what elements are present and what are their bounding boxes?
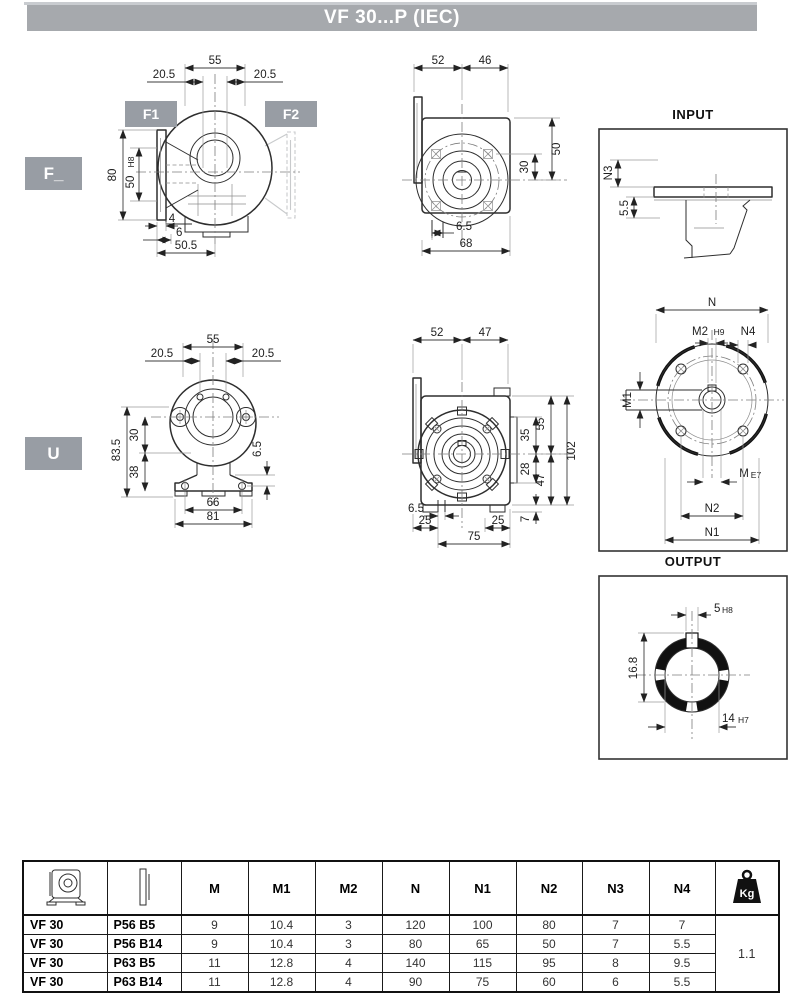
dim-f-6: 6 — [176, 227, 182, 239]
cell-N4: 7 — [649, 915, 715, 935]
dim-f-205-right: 20.5 — [254, 69, 276, 81]
dim-in-55: 5.5 — [619, 200, 631, 216]
cell-M: 9 — [181, 915, 248, 935]
f-side-extension-lines — [414, 64, 560, 256]
dim-out-key-tol: H8 — [722, 605, 733, 615]
cell-weight: 1.1 — [715, 915, 779, 992]
page-title: VF 30...P (IEC) — [27, 5, 757, 31]
cell-N: 140 — [382, 954, 449, 973]
dim-u-66: 66 — [207, 497, 220, 509]
cell-model: VF 30 — [23, 954, 107, 973]
dim-u-38: 38 — [129, 466, 141, 479]
f1-label-text: F1 — [143, 106, 160, 122]
input-side-dimensions: N3 5.5 — [603, 160, 660, 218]
drawing-u-front-view: 55 20.5 20.5 83.5 30 38 6.5 66 81 — [95, 325, 325, 537]
cell-N3: 6 — [582, 973, 649, 993]
dim-in-n: N — [708, 297, 716, 309]
output-dimensions: 5 H8 16.8 14 H7 — [628, 603, 749, 733]
header-N3: N3 — [582, 861, 649, 915]
motor-flange-icon — [133, 866, 155, 908]
dim-f-205-left: 20.5 — [153, 69, 175, 81]
cell-N: 80 — [382, 935, 449, 954]
cell-M: 11 — [181, 954, 248, 973]
cell-N1: 115 — [449, 954, 516, 973]
dim-us-55: 55 — [535, 418, 547, 431]
kg-icon-label: Kg — [739, 888, 754, 900]
dim-f-505: 50.5 — [175, 240, 197, 252]
dim-u-835: 83.5 — [111, 439, 123, 461]
dim-u-55: 55 — [207, 334, 220, 346]
table-row: VF 30 P56 B5 9 10.4 3 120 100 80 7 7 1.1 — [23, 915, 779, 935]
input-panel-title: INPUT — [598, 107, 788, 122]
u-side-body — [413, 378, 517, 512]
cell-M2: 4 — [315, 954, 382, 973]
cell-M1: 10.4 — [248, 935, 315, 954]
dim-in-n1: N1 — [705, 527, 720, 539]
cell-M1: 10.4 — [248, 915, 315, 935]
dim-out-bore: 14 — [722, 713, 735, 725]
dim-fs-46: 46 — [479, 55, 492, 67]
cell-M1: 12.8 — [248, 954, 315, 973]
dim-us-75: 75 — [468, 531, 481, 543]
dim-u-205-left: 20.5 — [151, 348, 173, 360]
dim-us-52: 52 — [431, 327, 444, 339]
dim-out-key: 5 — [714, 603, 720, 615]
cell-mount: P63 B5 — [107, 954, 181, 973]
drawing-u-side-view: 52 47 35 28 55 47 102 7 6.5 25 25 75 — [390, 318, 590, 560]
cell-N4: 5.5 — [649, 935, 715, 954]
table-header-row: M M1 M2 N N1 N2 N3 N4 Kg — [23, 861, 779, 915]
cell-N2: 80 — [516, 915, 582, 935]
drawing-input-panel: N3 5.5 — [598, 128, 788, 552]
header-M1: M1 — [248, 861, 315, 915]
output-panel-title: OUTPUT — [598, 554, 788, 569]
dim-in-m: M — [739, 468, 749, 480]
variant-label-f: F_ — [25, 157, 82, 190]
dim-out-depth: 16.8 — [628, 657, 640, 679]
dim-f-bore: 50 — [125, 176, 137, 189]
header-N4: N4 — [649, 861, 715, 915]
table-row: VF 30 P56 B14 9 10.4 3 80 65 50 7 5.5 — [23, 935, 779, 954]
input-flange-face — [620, 330, 784, 478]
cell-N2: 95 — [516, 954, 582, 973]
cell-N1: 75 — [449, 973, 516, 993]
dim-fs-68: 68 — [460, 238, 473, 250]
spec-table: M M1 M2 N N1 N2 N3 N4 Kg VF 30 — [22, 860, 780, 993]
f2-label-text: F2 — [283, 106, 300, 122]
gearbox-icon — [42, 866, 88, 908]
dim-fs-30: 30 — [519, 161, 531, 174]
cell-M2: 3 — [315, 915, 382, 935]
cell-N4: 9.5 — [649, 954, 715, 973]
cell-model: VF 30 — [23, 973, 107, 993]
dim-in-m2-tol: H9 — [714, 327, 725, 337]
dim-f-4: 4 — [169, 213, 176, 225]
drawing-output-panel: 5 H8 16.8 14 H7 — [598, 575, 788, 760]
header-N2: N2 — [516, 861, 582, 915]
dim-fs-50: 50 — [551, 143, 563, 156]
dim-in-m-tol: E7 — [751, 470, 762, 480]
f-front-dimensions: 55 20.5 20.5 80 50 H8 4 6 50.5 — [107, 55, 283, 253]
header-N: N — [382, 861, 449, 915]
cell-N2: 60 — [516, 973, 582, 993]
cell-model: VF 30 — [23, 935, 107, 954]
cell-N3: 7 — [582, 935, 649, 954]
u-front-extension-lines — [121, 343, 275, 528]
cell-N3: 8 — [582, 954, 649, 973]
cell-N2: 50 — [516, 935, 582, 954]
dim-in-n4: N4 — [741, 326, 756, 338]
dim-u-81: 81 — [207, 511, 220, 523]
dim-fs-52: 52 — [432, 55, 445, 67]
dim-us-25l: 25 — [419, 515, 432, 527]
cell-M2: 3 — [315, 935, 382, 954]
cell-M: 11 — [181, 973, 248, 993]
dim-in-n3: N3 — [603, 166, 615, 181]
catalog-page: VF 30...P (IEC) F_ U — [0, 0, 800, 996]
header-M2: M2 — [315, 861, 382, 915]
header-M: M — [181, 861, 248, 915]
cell-M2: 4 — [315, 973, 382, 993]
dim-us-7: 7 — [520, 516, 532, 522]
u-side-centerlines — [402, 382, 574, 528]
header-motor-flange-icon-cell — [107, 861, 181, 915]
dim-us-65: 6.5 — [408, 503, 424, 515]
header-N1: N1 — [449, 861, 516, 915]
cell-model: VF 30 — [23, 915, 107, 935]
header-weight-icon-cell: Kg — [715, 861, 779, 915]
f-front-ghost-flange — [265, 132, 295, 218]
dim-in-m2: M2 — [692, 326, 708, 338]
cell-M: 9 — [181, 935, 248, 954]
dim-f-55: 55 — [209, 55, 222, 67]
dim-f-bore-tol: H8 — [126, 156, 136, 167]
dim-in-n2: N2 — [705, 503, 720, 515]
cell-N4: 5.5 — [649, 973, 715, 993]
dim-us-25r: 25 — [492, 515, 505, 527]
dim-u-205-right: 20.5 — [252, 348, 274, 360]
cell-M1: 12.8 — [248, 973, 315, 993]
dim-f-80: 80 — [107, 169, 119, 182]
dim-u-65: 6.5 — [252, 441, 264, 457]
drawing-f-front-view: 55 20.5 20.5 80 50 H8 4 6 50.5 F1 — [100, 48, 328, 270]
dim-out-bore-tol: H7 — [738, 715, 749, 725]
variant-label-u: U — [25, 437, 82, 470]
header-gearbox-icon-cell — [23, 861, 107, 915]
kg-weight-icon: Kg — [730, 867, 764, 907]
cell-mount: P56 B14 — [107, 935, 181, 954]
cell-N1: 100 — [449, 915, 516, 935]
dim-us-47r: 47 — [535, 474, 547, 487]
cell-N3: 7 — [582, 915, 649, 935]
cell-mount: P63 B14 — [107, 973, 181, 993]
cell-N: 90 — [382, 973, 449, 993]
dim-u-30: 30 — [129, 429, 141, 442]
table-row: VF 30 P63 B14 11 12.8 4 90 75 60 6 5.5 — [23, 973, 779, 993]
drawing-f-side-view: 52 46 50 30 6.5 68 — [392, 48, 577, 263]
cell-N1: 65 — [449, 935, 516, 954]
f2-label: F2 — [265, 101, 317, 127]
input-side-profile — [654, 174, 772, 258]
dim-us-102: 102 — [566, 441, 578, 460]
cell-mount: P56 B5 — [107, 915, 181, 935]
table-row: VF 30 P63 B5 11 12.8 4 140 115 95 8 9.5 — [23, 954, 779, 973]
cell-N: 120 — [382, 915, 449, 935]
dim-fs-65: 6.5 — [456, 221, 472, 233]
dim-us-47t: 47 — [479, 327, 492, 339]
f1-label: F1 — [125, 101, 177, 127]
dim-us-35: 35 — [520, 429, 532, 442]
dim-us-28: 28 — [520, 463, 532, 476]
dim-in-m1: M1 — [622, 392, 634, 408]
f-side-centerlines — [402, 104, 567, 248]
